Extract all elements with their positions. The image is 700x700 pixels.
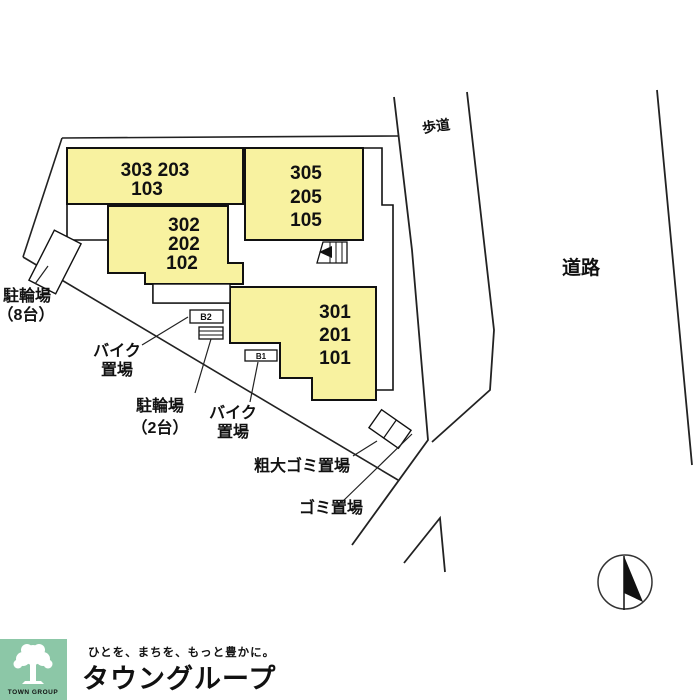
b2-box: B2 xyxy=(190,310,223,323)
bike1-label-line2: 置場 xyxy=(101,361,133,379)
tree-base xyxy=(22,681,44,684)
room-label-b2: 202 xyxy=(168,234,200,255)
tree-canopy-4 xyxy=(21,644,33,656)
road-label: 道路 xyxy=(562,256,601,279)
logo-square-label: TOWN GROUP xyxy=(8,689,59,696)
b1-box: B1 xyxy=(245,350,277,361)
room-label-d3: 101 xyxy=(319,348,351,369)
room-label-a2: 103 xyxy=(131,179,163,200)
bike2-label-line1: バイク xyxy=(209,404,257,422)
town-group-logo: TOWN GROUP ひとを、まちを、もっと豊かに。 タウングループ xyxy=(0,639,276,700)
bike-rack-rect xyxy=(199,327,223,339)
road-lines xyxy=(352,90,692,572)
room-label-b3: 102 xyxy=(166,253,198,274)
b1-box-label: B1 xyxy=(256,352,267,361)
leader-bulky-garbage xyxy=(353,441,377,456)
tree-trunk xyxy=(30,664,36,681)
room-label-c3: 105 xyxy=(290,210,322,231)
bicycle2-label-line1: 駐輪場 xyxy=(136,396,184,415)
bicycle8-label-line1: 駐輪場 xyxy=(3,286,51,305)
brand-tagline: ひとを、まちを、もっと豊かに。 xyxy=(88,645,275,659)
bicycle-parking-8-rect xyxy=(29,230,81,294)
entrance-box xyxy=(153,284,230,303)
sidewalk-label: 歩道 xyxy=(421,116,451,136)
road-corner-line xyxy=(404,518,445,572)
room-label-b1: 302 xyxy=(168,215,200,236)
compass-needle-fill xyxy=(624,556,643,602)
tree-canopy-5 xyxy=(33,644,45,656)
room-label-c1: 305 xyxy=(290,163,322,184)
site-boundary-top-line xyxy=(62,136,398,138)
room-label-a1: 303 203 xyxy=(121,160,190,181)
garbage-label: ゴミ置場 xyxy=(299,498,363,517)
tree-canopy-7 xyxy=(44,660,53,669)
leader-bicycle2 xyxy=(195,339,211,393)
north-arrow-icon xyxy=(598,555,652,610)
bulky-garbage-label: 粗大ゴミ置場 xyxy=(254,456,350,475)
bike-rack-box xyxy=(199,327,223,339)
bike2-label-line2: 置場 xyxy=(217,423,249,441)
leader-garbage xyxy=(341,434,412,503)
tree-canopy-6 xyxy=(14,660,23,669)
site-plan-svg: 歩道 道路 303 203 103 305 205 105 302 202 10… xyxy=(0,0,700,700)
bike1-label-line1: バイク xyxy=(93,342,141,360)
b2-box-label: B2 xyxy=(200,312,212,322)
unit-block-d xyxy=(230,287,376,400)
road-east-line xyxy=(657,90,692,465)
site-plan-page: 歩道 道路 303 203 103 305 205 105 302 202 10… xyxy=(0,0,700,700)
room-label-c2: 205 xyxy=(290,187,322,208)
sidewalk-east-line xyxy=(432,92,494,442)
room-label-d1: 301 xyxy=(319,302,351,323)
bicycle8-label-line2: （8台） xyxy=(0,305,54,324)
room-label-d2: 201 xyxy=(319,325,351,346)
brand-name: タウングループ xyxy=(82,663,276,694)
stairs-icon xyxy=(317,242,347,263)
bicycle2-label-line2: （2台） xyxy=(132,418,189,437)
